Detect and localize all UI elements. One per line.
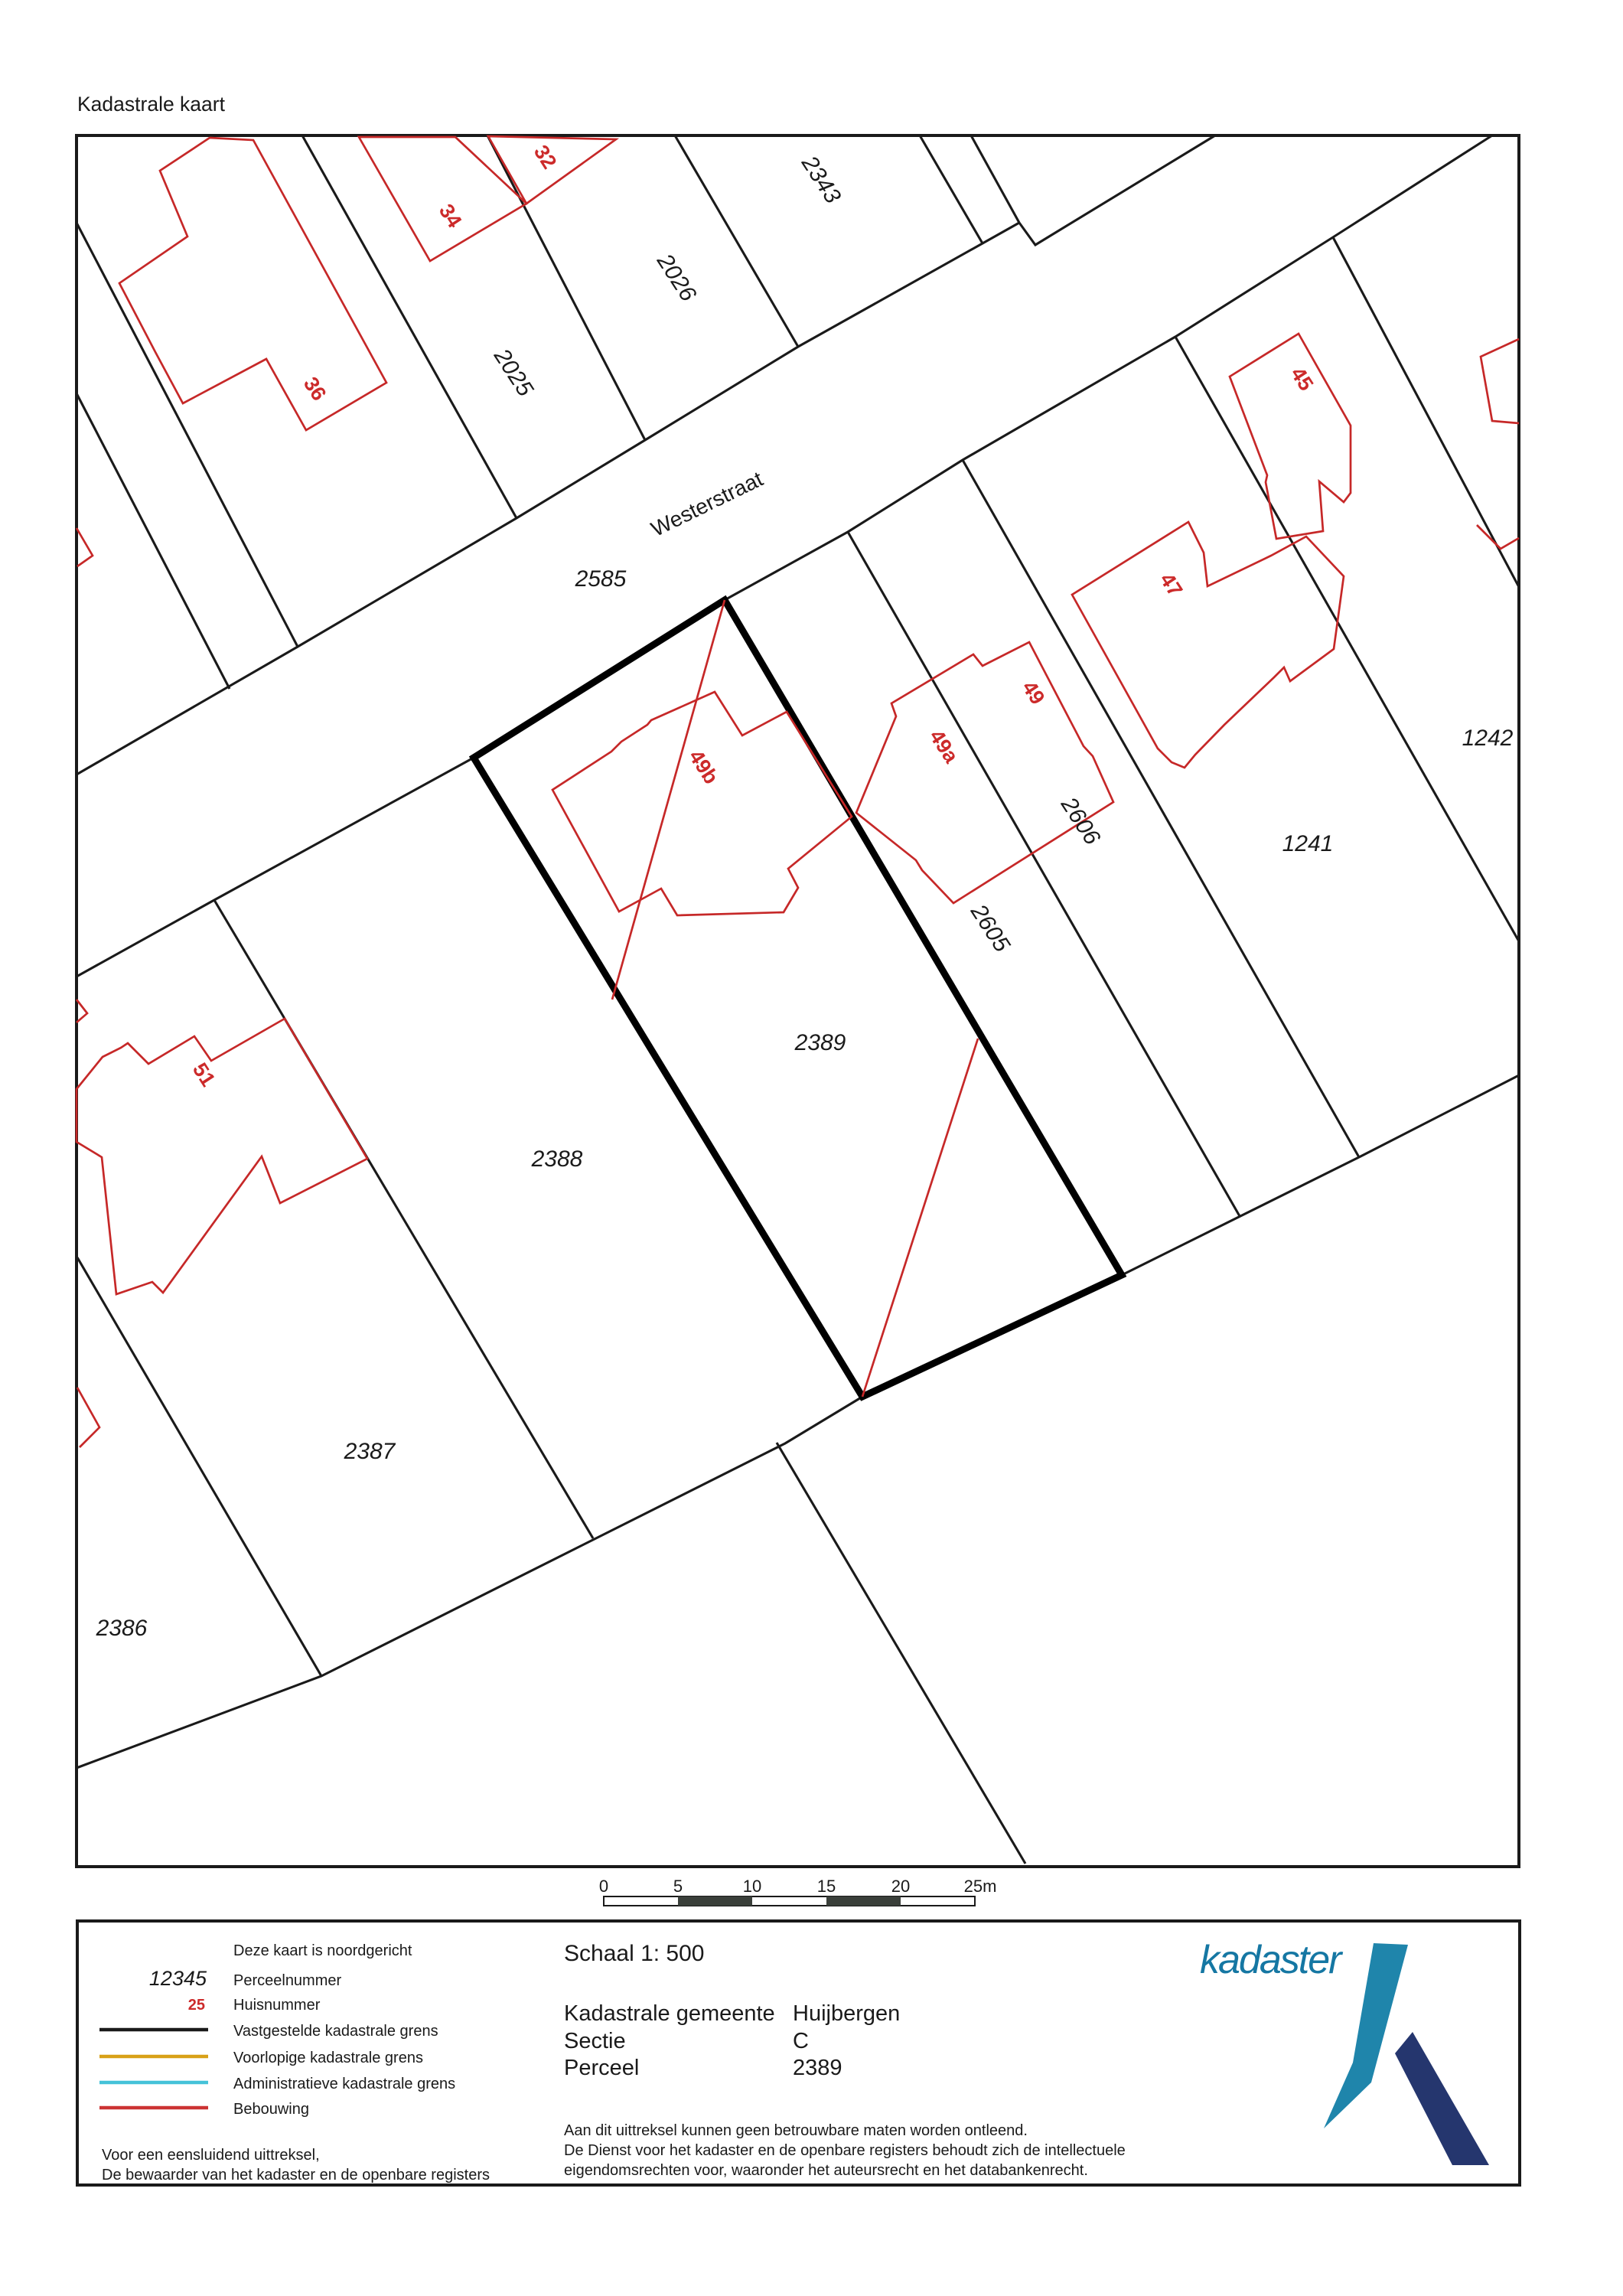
- svg-text:Aan dit uittreksel kunnen geen: Aan dit uittreksel kunnen geen betrouwba…: [564, 2122, 1028, 2139]
- svg-text:2388: 2388: [531, 1146, 583, 1172]
- svg-text:1241: 1241: [1282, 831, 1334, 856]
- svg-text:Perceel: Perceel: [564, 2056, 639, 2080]
- svg-text:Huijbergen: Huijbergen: [793, 2001, 900, 2026]
- svg-text:De bewaarder van het kadaster: De bewaarder van het kadaster en de open…: [102, 2167, 490, 2183]
- svg-text:De Dienst voor het kadaster en: De Dienst voor het kadaster en de openba…: [564, 2142, 1126, 2159]
- svg-text:0: 0: [599, 1877, 608, 1896]
- svg-text:2389: 2389: [793, 2056, 842, 2080]
- svg-text:20: 20: [891, 1877, 910, 1896]
- svg-text:kadaster: kadaster: [1200, 1938, 1344, 1982]
- svg-text:2387: 2387: [344, 1439, 396, 1464]
- svg-text:Vastgestelde kadastrale grens: Vastgestelde kadastrale grens: [233, 2023, 438, 2040]
- svg-text:Huisnummer: Huisnummer: [233, 1997, 321, 2014]
- svg-text:10: 10: [743, 1877, 761, 1896]
- svg-text:25m: 25m: [964, 1877, 997, 1896]
- svg-text:Bebouwing: Bebouwing: [233, 2101, 309, 2118]
- svg-text:Deze kaart is noordgericht: Deze kaart is noordgericht: [233, 1942, 412, 1959]
- svg-text:Kadastrale kaart: Kadastrale kaart: [77, 93, 226, 116]
- svg-text:1242: 1242: [1462, 726, 1514, 751]
- svg-text:Administratieve kadastrale gre: Administratieve kadastrale grens: [233, 2076, 455, 2092]
- svg-text:Sectie: Sectie: [564, 2029, 626, 2053]
- svg-text:2389: 2389: [794, 1030, 846, 1055]
- svg-text:Perceelnummer: Perceelnummer: [233, 1972, 342, 1989]
- svg-text:C: C: [793, 2029, 809, 2053]
- svg-text:15: 15: [817, 1877, 836, 1896]
- svg-text:5: 5: [673, 1877, 683, 1896]
- svg-text:Voor een eensluidend uittrekse: Voor een eensluidend uittreksel,: [102, 2147, 320, 2164]
- svg-text:2585: 2585: [575, 566, 627, 592]
- svg-text:Schaal 1: 500: Schaal 1: 500: [564, 1941, 704, 1966]
- svg-text:2386: 2386: [96, 1616, 148, 1641]
- svg-text:Kadastrale gemeente: Kadastrale gemeente: [564, 2001, 775, 2026]
- svg-text:eigendomsrechten voor, waarond: eigendomsrechten voor, waaronder het aut…: [564, 2162, 1088, 2179]
- svg-text:Voorlopige kadastrale grens: Voorlopige kadastrale grens: [233, 2050, 423, 2066]
- svg-text:12345: 12345: [149, 1967, 207, 1990]
- svg-text:25: 25: [188, 1997, 205, 2014]
